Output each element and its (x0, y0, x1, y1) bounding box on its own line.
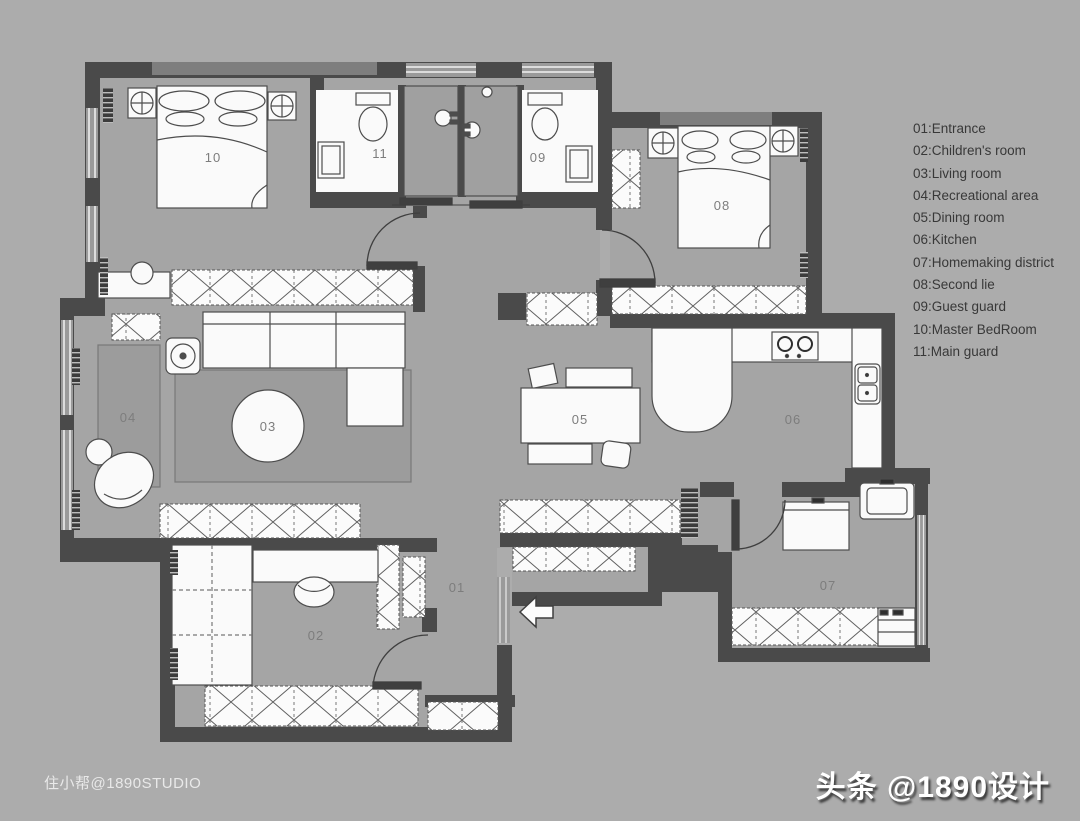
cabinet-living-bottom (160, 504, 360, 538)
window-laundry-right (917, 515, 926, 645)
pillow (687, 151, 715, 163)
legend-item: 07:Homemaking district (913, 252, 1054, 274)
legend-item: 01:Entrance (913, 118, 1054, 140)
shower-tray (404, 86, 458, 196)
room-label-04: 04 (120, 410, 136, 425)
watermark-studio: 住小帮@1890STUDIO (44, 772, 201, 793)
cabinet-corridor-dining (527, 293, 597, 325)
room-label-05: 05 (572, 412, 588, 427)
pillow (730, 131, 766, 149)
cabinet-corridor-b (403, 557, 425, 617)
cabinet-hall-upper (513, 547, 635, 571)
dining-bench (566, 368, 632, 387)
legend-item: 03:Living room (913, 163, 1054, 185)
room-label-03: 03 (260, 419, 276, 434)
guest-guard-fixtures (522, 90, 598, 192)
desk-chair (294, 577, 334, 607)
room-legend: 01:Entrance 02:Children's room 03:Living… (913, 118, 1054, 363)
toilet-tank (356, 93, 390, 105)
legend-item: 08:Second lie (913, 274, 1054, 296)
kitchen-peninsula (652, 328, 732, 432)
radiator (800, 128, 808, 162)
drain-icon (482, 87, 492, 97)
legend-item: 05:Dining room (913, 207, 1054, 229)
watermark-toutiao: 头条 @1890设计 (816, 762, 1050, 806)
pillow (219, 112, 257, 126)
cabinet-corridor-a (377, 545, 399, 629)
floorplan-page: 10 11 09 08 04 03 05 06 02 01 07 01:Entr… (0, 0, 1080, 821)
legend-item: 10:Master BedRoom (913, 319, 1054, 341)
toilet-tank (528, 93, 562, 105)
room-label-10: 10 (205, 150, 221, 165)
cabinet-second-bedroom-niche (612, 150, 640, 208)
wardrobe-children (205, 686, 418, 726)
living-room-furniture (166, 312, 411, 482)
shoe-cabinet-entrance (428, 702, 498, 730)
shower-tray (464, 86, 518, 196)
radiator (170, 550, 178, 575)
cabinet-rec-area (112, 314, 160, 340)
toilet-icon (359, 107, 387, 141)
washing-machine-icon (783, 502, 849, 550)
room-label-09: 09 (530, 150, 546, 165)
room-label-02: 02 (308, 628, 324, 643)
legend-item: 02:Children's room (913, 140, 1054, 162)
radiator (72, 348, 80, 385)
radiator (72, 490, 80, 530)
radiator (170, 648, 178, 680)
radiator (103, 88, 113, 123)
main-guard-fixtures (316, 90, 398, 192)
radiator (100, 257, 108, 295)
radiator (800, 252, 808, 278)
toilet-icon (532, 108, 558, 140)
legend-item: 11:Main guard (913, 341, 1054, 363)
sofa (203, 312, 405, 368)
legend-item: 09:Guest guard (913, 296, 1054, 318)
sofa-chaise (347, 368, 403, 426)
room-label-06: 06 (785, 412, 801, 427)
stool (131, 262, 153, 284)
pillow (159, 91, 209, 111)
room-label-01: 01 (449, 580, 465, 595)
cabinet-laundry-bottom (732, 608, 878, 645)
kitchen-sink-icon (855, 364, 880, 404)
shower-head-icon (435, 110, 451, 126)
legend-item: 06:Kitchen (913, 229, 1054, 251)
entrance-door-band[interactable] (497, 577, 510, 643)
wardrobe-second-bedroom (612, 286, 806, 314)
pillow (215, 91, 265, 111)
pillow (166, 112, 204, 126)
dining-chair (528, 444, 592, 464)
wardrobe-master (172, 270, 413, 305)
dining-chair (600, 440, 631, 469)
cabinet-dining-bottom (500, 500, 680, 533)
room-label-08: 08 (714, 198, 730, 213)
room-label-07: 07 (820, 578, 836, 593)
legend-item: 04:Recreational area (913, 185, 1054, 207)
room-label-11: 11 (372, 146, 388, 161)
radiator-hall (681, 488, 698, 538)
pillow (682, 131, 718, 149)
pillow (732, 151, 760, 163)
